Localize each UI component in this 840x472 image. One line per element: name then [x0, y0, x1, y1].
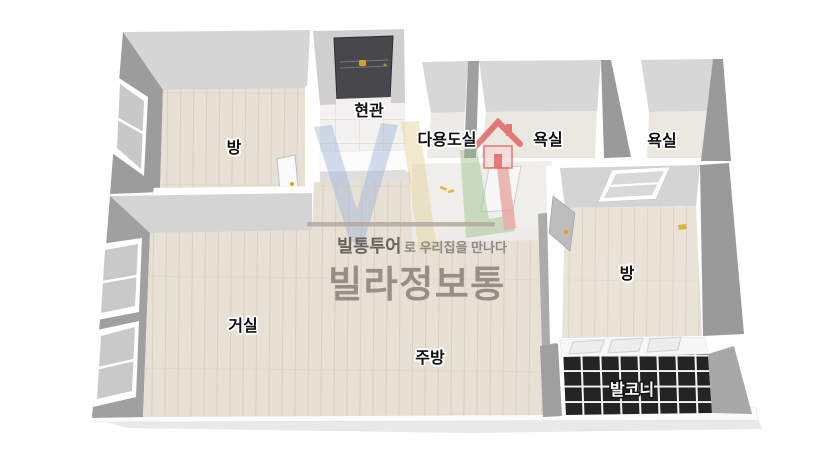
house-chimney [506, 124, 512, 136]
room-label-entrance: 현관 [354, 101, 384, 120]
balcony-window [569, 340, 604, 354]
floor-plan-canvas: 빌통투어 로 우리집을 만나다 빌라정보통 방 현관 다용도실 욕실 욕실 방 … [0, 0, 840, 472]
wall-band-east [305, 86, 318, 190]
watermark-brand-name: 빌라정보통 [328, 264, 506, 305]
room-label-bedroom-right: 방 [620, 265, 635, 283]
room-label-bathroom-2: 욕실 [647, 132, 676, 150]
watermark-tagline-rest: 로 우리집을 만나다 [404, 240, 507, 255]
door-lock [359, 60, 366, 66]
house-door [494, 154, 502, 168]
balcony-window [608, 338, 643, 353]
entrance-door [334, 36, 393, 101]
room-label-balcony: 발코니 [610, 381, 654, 399]
watermark-divider [307, 222, 495, 227]
room-bedroom-top-left [110, 30, 318, 199]
balcony-window [647, 337, 681, 352]
floor-plan-screenshot: 빌통투어 로 우리집을 만나다 빌라정보통 방 현관 다용도실 욕실 욕실 방 … [0, 0, 840, 472]
door-handle [564, 230, 568, 234]
handle-mark [678, 224, 687, 230]
room-label-living-room: 거실 [228, 317, 257, 335]
door-handle [384, 64, 387, 67]
room-label-utility: 다용도실 [418, 131, 477, 149]
watermark-tagline-brand: 빌통투어 [337, 236, 401, 256]
room-label-bedroom-top-left: 방 [227, 139, 242, 157]
bathroom1-back-wall [479, 60, 601, 112]
room-label-kitchen: 주방 [415, 349, 445, 367]
north-right-rooms [412, 55, 733, 172]
room-bedroom-right [546, 163, 744, 344]
door-handle [290, 182, 294, 186]
bathroom2-back-wall [641, 59, 713, 112]
door-leaf [277, 155, 298, 190]
room-label-bathroom-1: 욕실 [533, 131, 562, 149]
